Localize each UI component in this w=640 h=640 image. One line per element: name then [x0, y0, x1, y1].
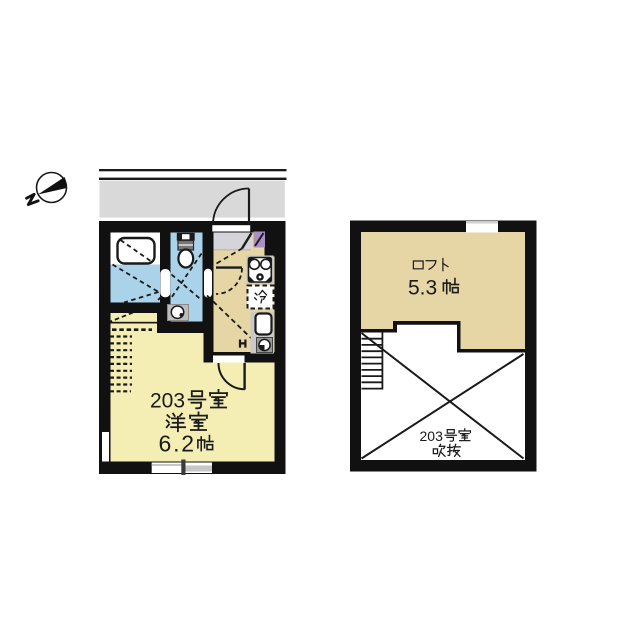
svg-text:203: 203 [150, 390, 185, 413]
svg-text:5.3: 5.3 [408, 277, 437, 300]
svg-text:203: 203 [420, 428, 444, 444]
svg-text:6.2: 6.2 [159, 431, 196, 457]
